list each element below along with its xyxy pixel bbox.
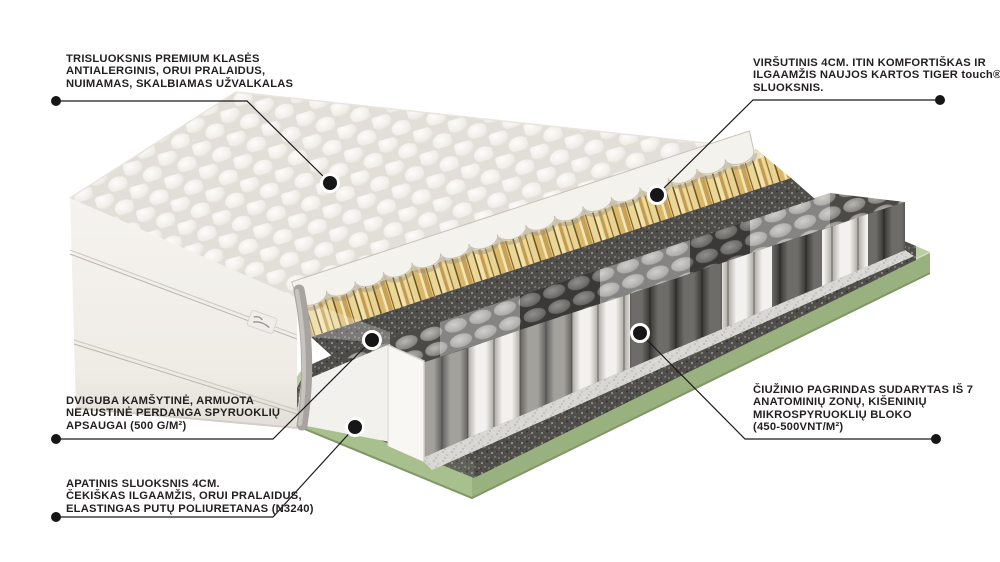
annotation-springs-core: ČIUŽINIO PAGRINDAS SUDARYTAS IŠ 7 ANATOM… (753, 384, 973, 434)
target-dot-springs (632, 325, 649, 342)
annotation-line: NUIMAMAS, SKALBIAMAS UŽVALKALAS (66, 78, 293, 90)
target-dot-bottom (347, 419, 364, 436)
annotation-line: ČEKIŠKAS ILGAAMŽIS, ORUI PRALAIDUS, (66, 490, 314, 502)
annotation-bottom-layer: APATINIS SLUOKSNIS 4CM. ČEKIŠKAS ILGAAMŽ… (66, 478, 314, 515)
annotation-line: ILGAAMŽIS NAUJOS KARTOS TIGER touch® (753, 69, 1000, 81)
annotation-line: ELASTINGAS PUTŲ POLIURETANAS (N3240) (66, 503, 314, 515)
mattress-layers-infographic: TRISLUOKSNIS PREMIUM KLASĖS ANTIALERGINI… (0, 0, 1000, 562)
annotation-line: MIKROSPYRUOKLIŲ BLOKO (753, 409, 973, 421)
annotation-line: (450-500VNT/M²) (753, 421, 973, 433)
annotation-line: SLUOKSNIS. (753, 82, 1000, 94)
annotation-line: ANTIALERGINIS, ORUI PRALAIDUS, (66, 65, 293, 77)
annotation-line: TRISLUOKSNIS PREMIUM KLASĖS (66, 53, 293, 65)
annotation-line: APATINIS SLUOKSNIS 4CM. (66, 478, 314, 490)
annotation-line: APSAUGAI (500 G/M²) (66, 420, 280, 432)
annotation-line: DVIGUBA KAMŠYTINĖ, ARMUOTA (66, 395, 280, 407)
annotation-line: ČIUŽINIO PAGRINDAS SUDARYTAS IŠ 7 (753, 384, 973, 396)
annotation-line: VIRŠUTINIS 4CM. ITIN KOMFORTIŠKAS IR (753, 57, 1000, 69)
annotation-cover: TRISLUOKSNIS PREMIUM KLASĖS ANTIALERGINI… (66, 53, 293, 90)
target-dot-tiger (649, 187, 666, 204)
annotation-line: NEAUSTINĖ PERDANGA SPYRUOKLIŲ (66, 407, 280, 419)
annotation-tiger-touch: VIRŠUTINIS 4CM. ITIN KOMFORTIŠKAS IR ILG… (753, 57, 1000, 94)
target-dot-felt (364, 332, 381, 349)
annotation-spring-felt: DVIGUBA KAMŠYTINĖ, ARMUOTA NEAUSTINĖ PER… (66, 395, 280, 432)
target-dot-cover (322, 175, 339, 192)
annotation-line: ANATOMINIŲ ZONŲ, KIŠENINIŲ (753, 396, 973, 408)
